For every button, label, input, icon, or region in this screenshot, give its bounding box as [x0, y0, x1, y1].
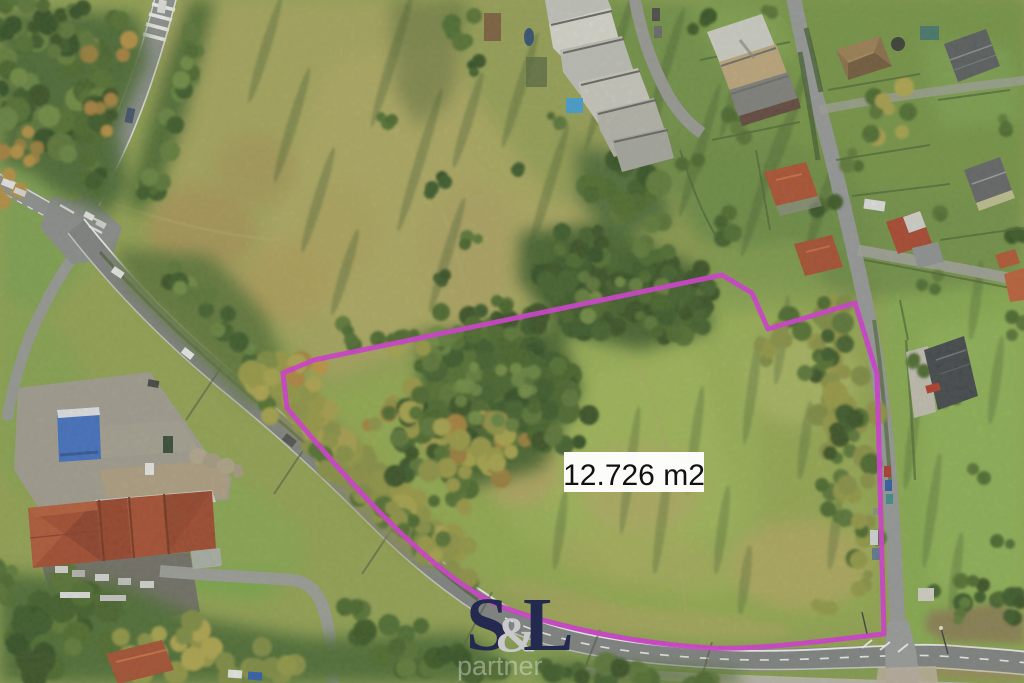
svg-text:partner: partner — [457, 651, 543, 681]
svg-text:12.726 m2: 12.726 m2 — [563, 459, 705, 492]
